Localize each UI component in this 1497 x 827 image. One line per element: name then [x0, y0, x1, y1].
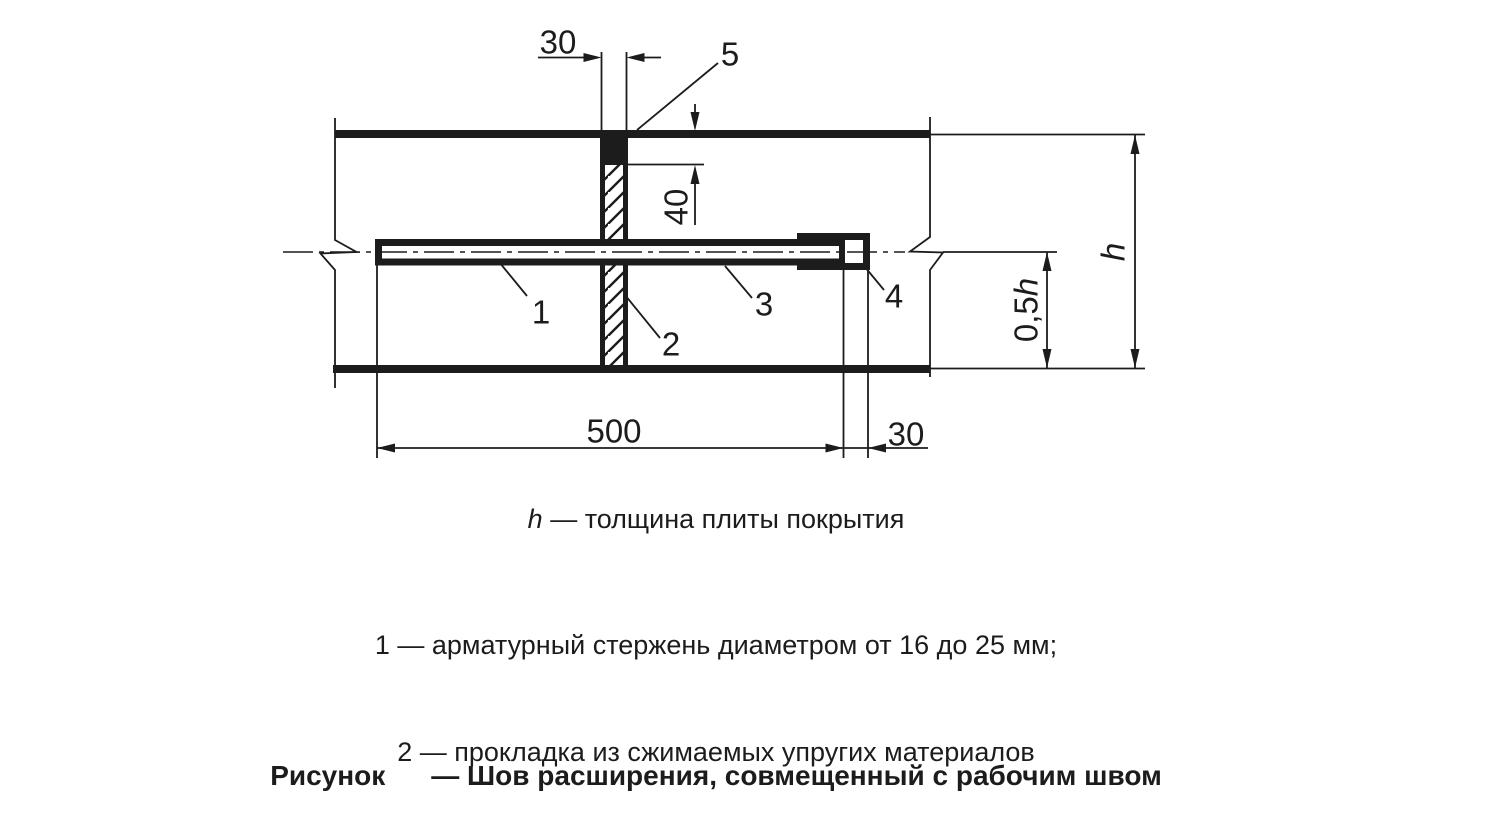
- leader-line-coating-3: [725, 266, 752, 298]
- arrowhead-30top-left: [584, 53, 602, 62]
- dim-h-label: h: [1097, 243, 1130, 261]
- bottom-slab-line: [333, 365, 930, 373]
- leader-line-sealant-5: [637, 63, 718, 130]
- arrowhead-05h-down: [1043, 349, 1052, 368]
- dim-05h-label: 0,5h: [1010, 278, 1043, 342]
- part-label-compensator: 4: [885, 280, 903, 313]
- part-label-coating: 3: [755, 288, 773, 321]
- arrowhead-h-up: [1131, 135, 1140, 154]
- arrowhead-500-left: [377, 444, 395, 453]
- arrowhead-40-up: [691, 165, 700, 184]
- figure-page: 30 40 500 30 0,5h h 1 2 3 4 5 h — толщин…: [0, 0, 1497, 827]
- figure-caption: Рисунок— Шов расширения, совмещенный с р…: [0, 760, 1432, 792]
- part-label-gasket: 2: [662, 328, 680, 361]
- dim-30-top-label: 30: [540, 26, 577, 59]
- break-line-right: [910, 117, 943, 377]
- arrowhead-40-down: [691, 112, 700, 131]
- arrowhead-30bottom: [868, 444, 886, 453]
- top-slab-line: [335, 130, 930, 138]
- arrowhead-500-right: [826, 444, 844, 453]
- break-line-left: [321, 118, 357, 388]
- dim-30-bottom-label: 30: [888, 418, 925, 451]
- legend-h-definition: h — толщина плиты покрытия: [0, 504, 1432, 534]
- sealant-plug: [600, 130, 628, 165]
- dim-40-label: 40: [660, 189, 693, 226]
- legend-line: 1 — арматурный стержень диаметром от 16 …: [0, 628, 1432, 664]
- part-label-rebar: 1: [532, 296, 550, 329]
- arrowhead-30top-right: [627, 53, 645, 62]
- arrowhead-05h-up: [1043, 252, 1052, 271]
- dim-500-label: 500: [586, 415, 641, 448]
- arrowhead-h-down: [1131, 349, 1140, 368]
- leader-line-gasket-2: [625, 295, 660, 338]
- part-label-sealant: 5: [721, 38, 739, 71]
